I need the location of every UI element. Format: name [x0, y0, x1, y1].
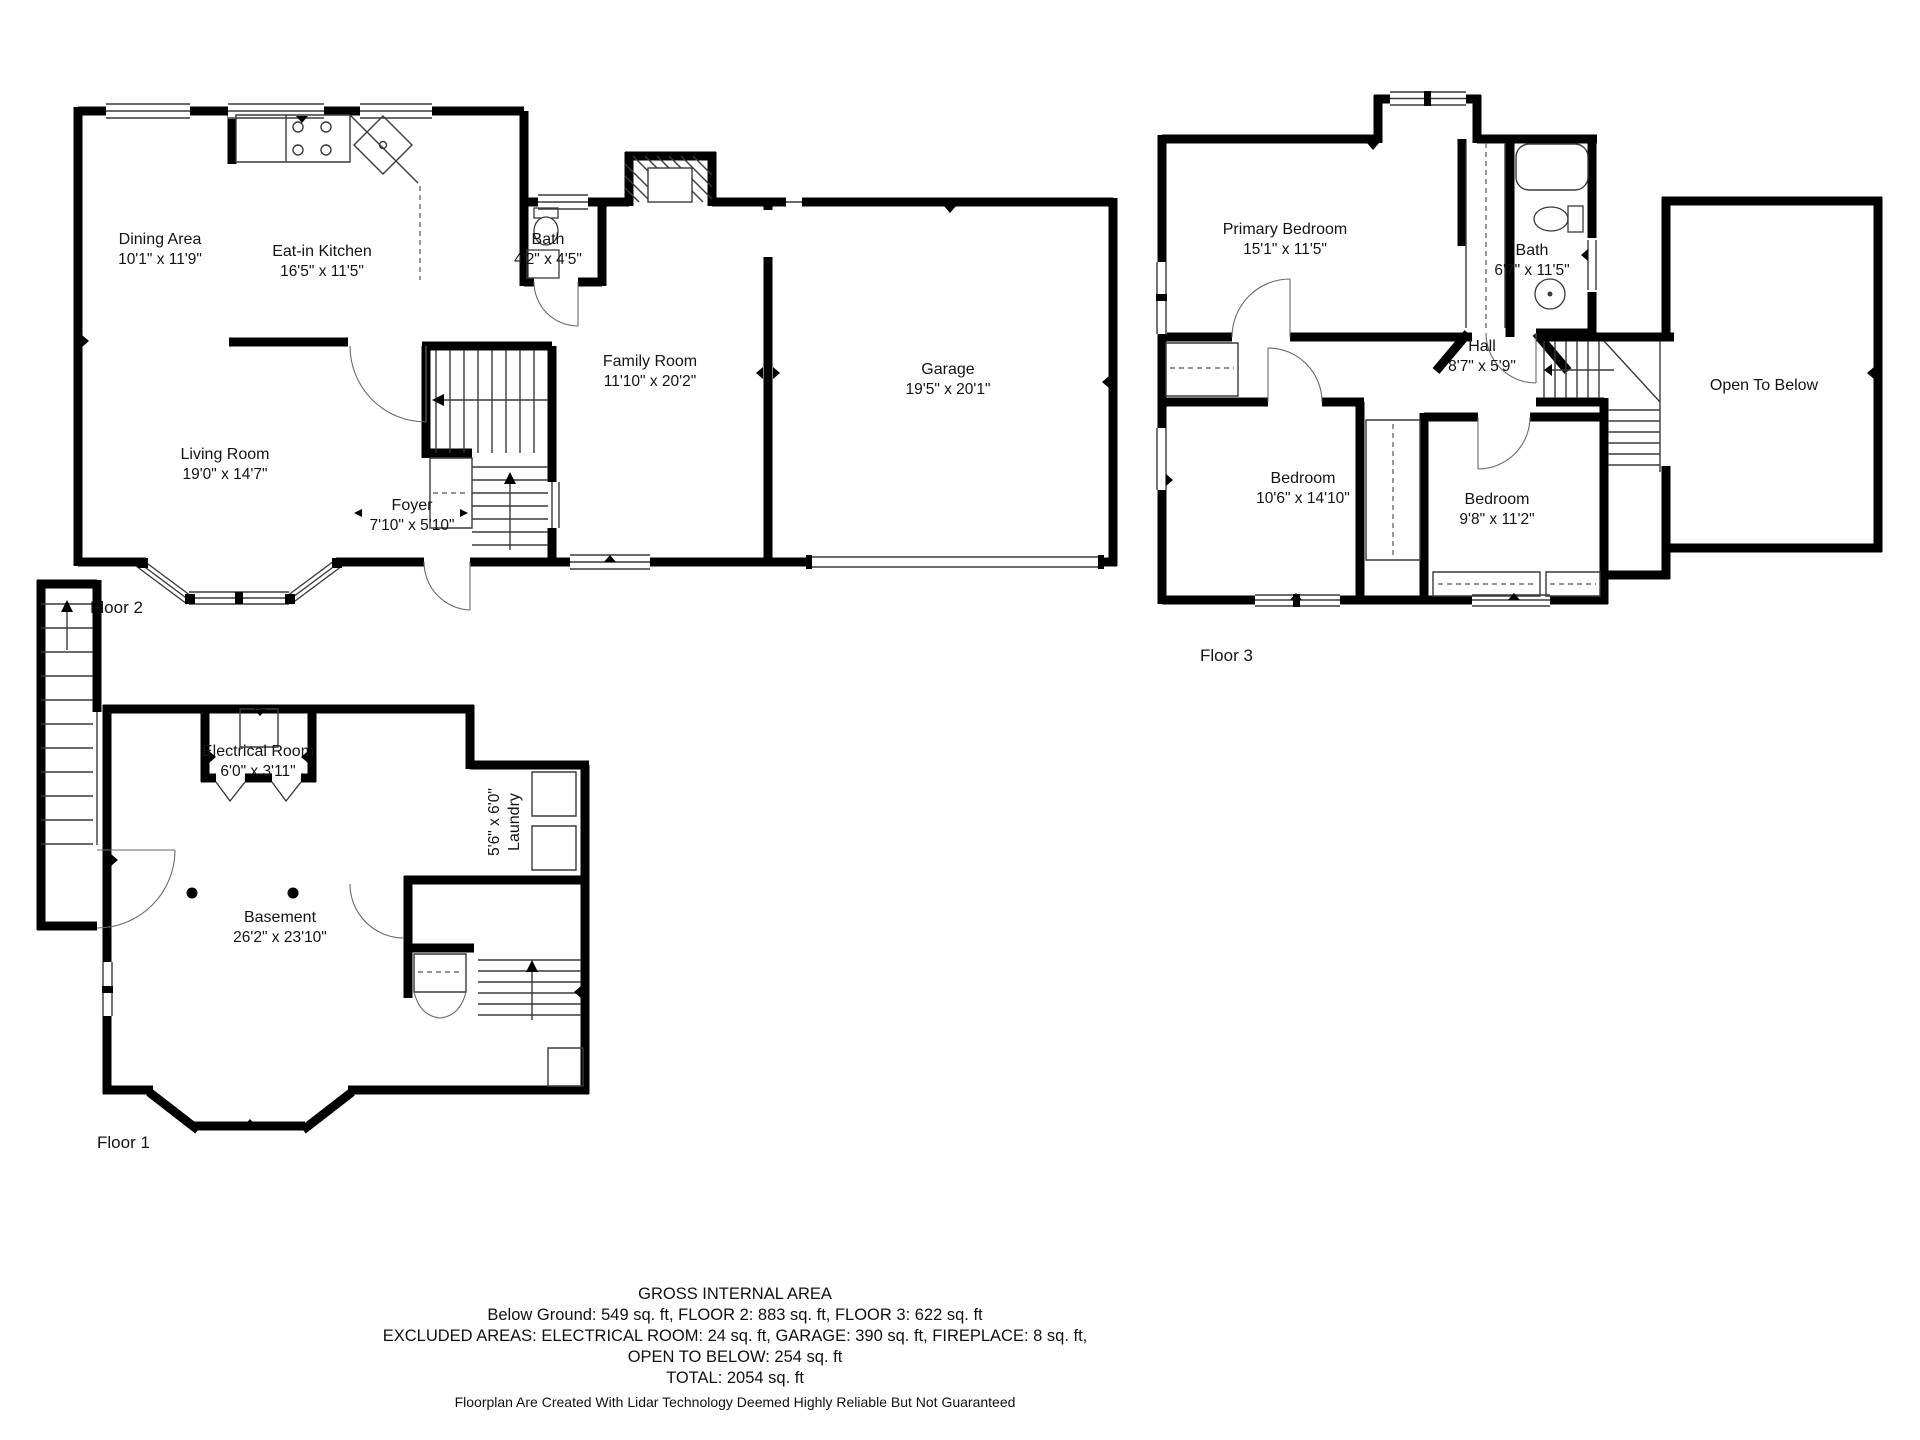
- room-name: Foyer: [369, 496, 454, 516]
- room-label-family-room: Family Room 11'10" x 20'2": [603, 352, 697, 392]
- room-dims: 11'10" x 20'2": [603, 372, 697, 392]
- room-label-bath-floor3: Bath 6'7" x 11'5": [1494, 241, 1569, 281]
- summary-title: GROSS INTERNAL AREA: [0, 1284, 1470, 1305]
- room-dims: 19'5" x 20'1": [905, 380, 990, 400]
- room-dims: 15'1" x 11'5": [1223, 240, 1347, 260]
- room-label-dining-area: Dining Area 10'1" x 11'9": [118, 230, 202, 270]
- area-summary: GROSS INTERNAL AREA Below Ground: 549 sq…: [0, 1284, 1470, 1413]
- room-dims: 7'10" x 5'10": [369, 516, 454, 536]
- room-dims: 6'0" x 3'11": [202, 762, 314, 782]
- room-label-basement: Basement 26'2" x 23'10": [233, 908, 327, 948]
- room-dims: 8'7" x 5'9": [1448, 357, 1516, 377]
- room-label-eat-in-kitchen: Eat-in Kitchen 16'5" x 11'5": [272, 242, 372, 282]
- room-name: Electrical Room: [202, 742, 314, 762]
- room-name: Open To Below: [1710, 376, 1818, 396]
- floor3-label: Floor 3: [1200, 646, 1253, 666]
- room-name: Hall: [1448, 337, 1516, 357]
- room-label-bedroom-1: Bedroom 10'6" x 14'10": [1256, 469, 1350, 509]
- summary-line-total: TOTAL: 2054 sq. ft: [0, 1368, 1470, 1389]
- room-dims: 16'5" x 11'5": [272, 262, 372, 282]
- floor2-plan: [78, 103, 1117, 610]
- room-dims: 10'1" x 11'9": [118, 250, 202, 270]
- room-name: Bath: [1494, 241, 1569, 261]
- room-name: Dining Area: [118, 230, 202, 250]
- room-dims: 6'7" x 11'5": [1494, 261, 1569, 281]
- summary-disclaimer: Floorplan Are Created With Lidar Technol…: [0, 1389, 1470, 1413]
- room-label-foyer: Foyer 7'10" x 5'10": [369, 496, 454, 536]
- floorplan-page: Dining Area 10'1" x 11'9" Eat-in Kitchen…: [0, 0, 1920, 1440]
- floor2-label: Floor 2: [90, 598, 143, 618]
- room-dims: 9'8" x 11'2": [1459, 510, 1534, 530]
- room-dims: 4'2" x 4'5": [514, 250, 582, 270]
- room-label-primary-bedroom: Primary Bedroom 15'1" x 11'5": [1223, 220, 1347, 260]
- room-label-garage: Garage 19'5" x 20'1": [905, 360, 990, 400]
- room-dims: 26'2" x 23'10": [233, 928, 327, 948]
- room-name: Family Room: [603, 352, 697, 372]
- room-label-bath-floor2: Bath 4'2" x 4'5": [514, 230, 582, 270]
- room-name: Living Room: [181, 445, 270, 465]
- room-name: Bedroom: [1256, 469, 1350, 489]
- summary-line-open-below: OPEN TO BELOW: 254 sq. ft: [0, 1347, 1470, 1368]
- room-dims: 10'6" x 14'10": [1256, 489, 1350, 509]
- room-dims: 5'6" x 6'0": [485, 788, 505, 856]
- floor1-label: Floor 1: [97, 1133, 150, 1153]
- room-label-hall: Hall 8'7" x 5'9": [1448, 337, 1516, 377]
- summary-line-excluded: EXCLUDED AREAS: ELECTRICAL ROOM: 24 sq. …: [0, 1326, 1470, 1347]
- room-label-electrical-room: Electrical Room 6'0" x 3'11": [202, 742, 314, 782]
- room-name: Bath: [514, 230, 582, 250]
- room-name: Laundry: [505, 788, 525, 856]
- room-name: Primary Bedroom: [1223, 220, 1347, 240]
- room-name: Basement: [233, 908, 327, 928]
- room-label-bedroom-2: Bedroom 9'8" x 11'2": [1459, 490, 1534, 530]
- room-label-open-to-below: Open To Below: [1710, 376, 1818, 396]
- room-name: Garage: [905, 360, 990, 380]
- room-name: Bedroom: [1459, 490, 1534, 510]
- room-dims: 19'0" x 14'7": [181, 465, 270, 485]
- summary-line-floors: Below Ground: 549 sq. ft, FLOOR 2: 883 s…: [0, 1305, 1470, 1326]
- room-label-living-room: Living Room 19'0" x 14'7": [181, 445, 270, 485]
- floorplan-drawing: [0, 0, 1920, 1440]
- room-name: Eat-in Kitchen: [272, 242, 372, 262]
- room-label-laundry: 5'6" x 6'0" Laundry: [485, 788, 525, 856]
